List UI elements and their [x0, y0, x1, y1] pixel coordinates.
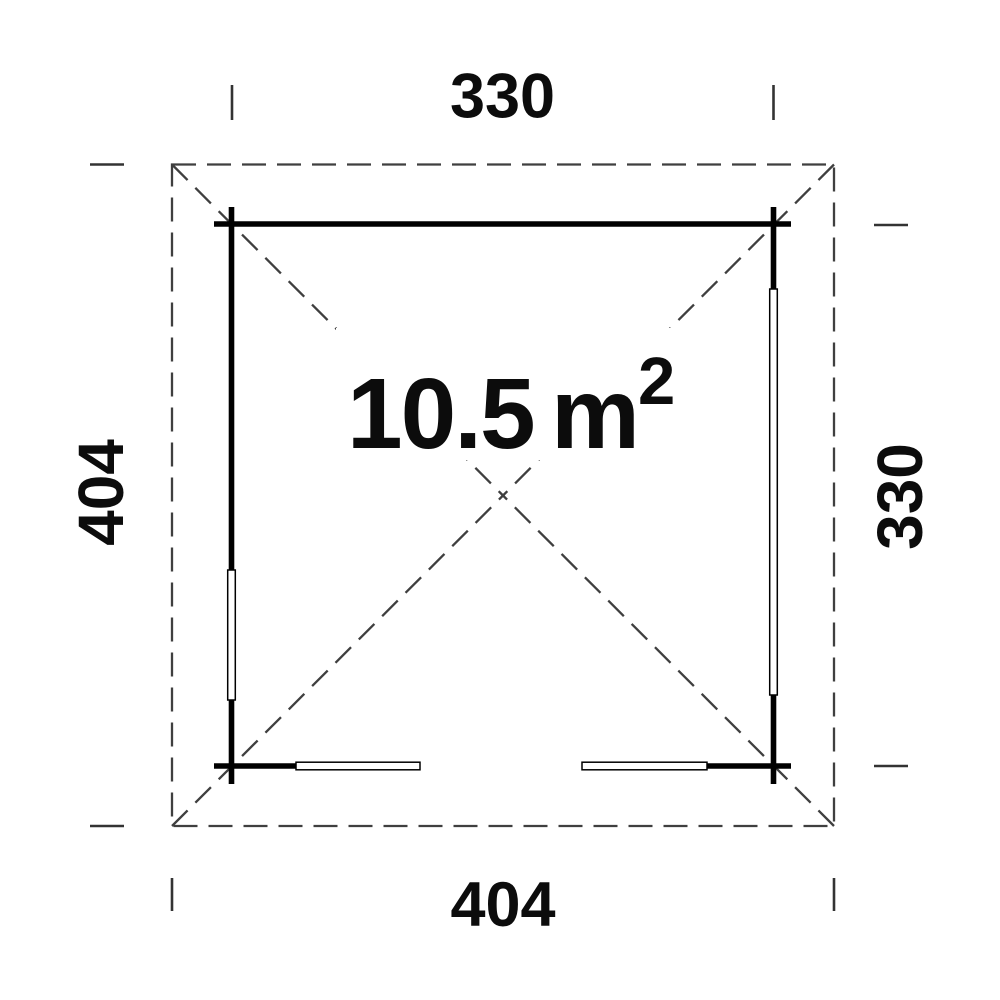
svg-text:2: 2: [638, 344, 675, 419]
svg-text:10.5: 10.5: [347, 358, 534, 470]
svg-text:330: 330: [864, 443, 936, 550]
svg-text:404: 404: [450, 870, 555, 940]
svg-text:330: 330: [450, 62, 555, 132]
svg-text:404: 404: [65, 439, 137, 546]
svg-text:m: m: [551, 358, 640, 470]
